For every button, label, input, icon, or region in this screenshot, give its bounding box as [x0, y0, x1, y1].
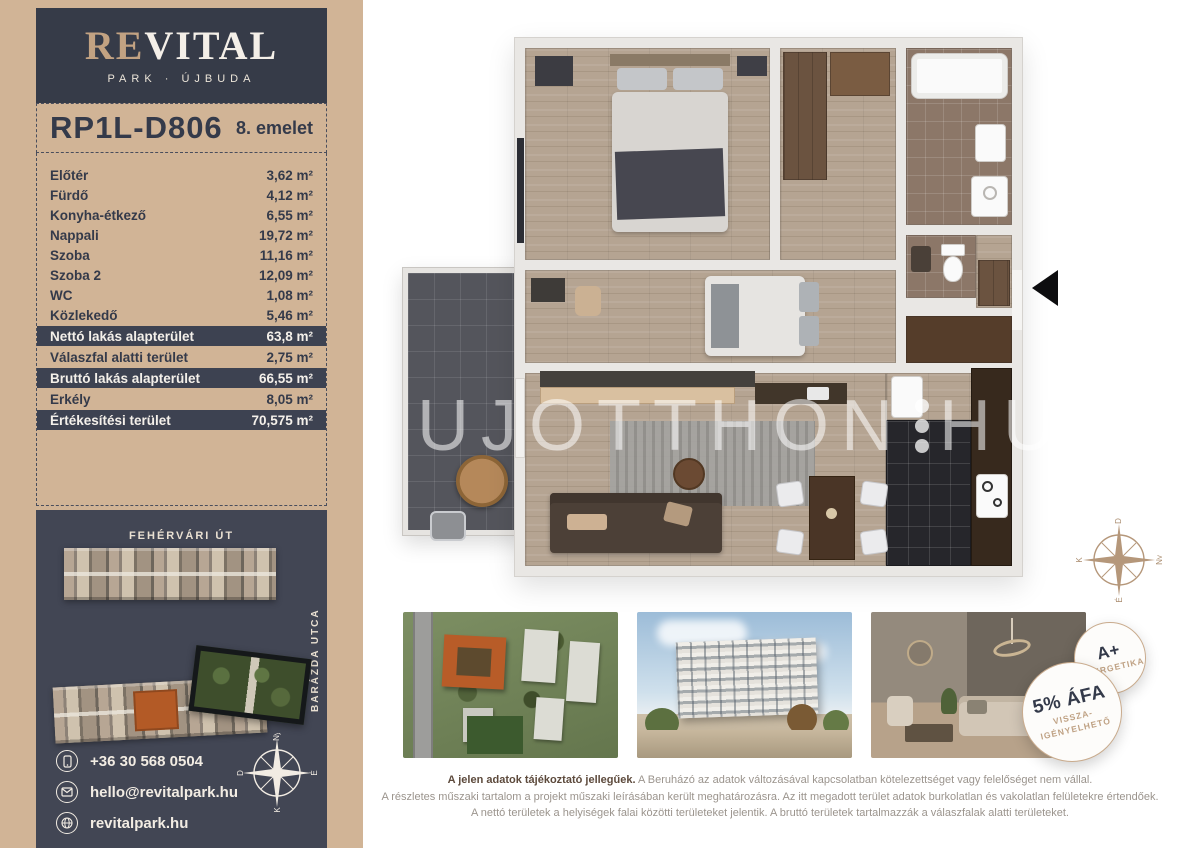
- room-area-table: Előtér3,62 m²Fürdő4,12 m²Konyha-étkező6,…: [36, 153, 327, 506]
- floor-plan: [515, 38, 1022, 576]
- room-row: Közlekedő5,46 m²: [37, 305, 326, 325]
- contact-block: +36 30 568 0504 hello@revitalpark.hu rev…: [56, 750, 238, 834]
- bed-throw: [615, 148, 725, 220]
- room-label: Fürdő: [50, 188, 88, 203]
- burner: [993, 498, 1002, 507]
- entry-doormat: [978, 260, 1010, 306]
- coffee-table: [673, 458, 705, 490]
- room-label: Értékesítési terület: [50, 413, 171, 428]
- table-decor: [826, 508, 837, 519]
- compass-rose-white-icon: Ny É K D: [237, 733, 317, 813]
- highlighted-building-marker: [133, 689, 179, 731]
- burner: [982, 481, 993, 492]
- kitchen-island: [755, 383, 847, 404]
- stove: [976, 474, 1008, 518]
- pillow: [673, 68, 723, 90]
- nightstand: [535, 56, 573, 86]
- disclaimer: A jelen adatok tájékoztató jellegűek. A …: [370, 772, 1170, 822]
- dining-chair: [775, 480, 804, 507]
- balcony-table: [456, 455, 508, 507]
- room-value: 63,8 m²: [266, 329, 313, 344]
- compass-letter: K: [1076, 557, 1084, 563]
- compass-letter: Ny: [1155, 555, 1162, 565]
- thumbnail-building-render: [637, 612, 852, 758]
- pillow: [617, 68, 667, 90]
- dining-chair: [859, 480, 888, 507]
- highlighted-building: [442, 634, 507, 689]
- contact-website-text: revitalpark.hu: [90, 815, 188, 832]
- compass-letter: É: [310, 770, 317, 775]
- room-row: Szoba11,16 m²: [37, 245, 326, 265]
- kitchen-floor: [886, 420, 971, 566]
- room-row: Előtér3,62 m²: [37, 165, 326, 185]
- room-row: WC1,08 m²: [37, 285, 326, 305]
- bathtub: [911, 53, 1008, 99]
- room-value: 1,08 m²: [266, 288, 313, 303]
- globe-icon: [56, 812, 78, 834]
- media-shelf: [540, 371, 755, 387]
- dining-chair: [859, 528, 888, 555]
- compass-letter: D: [1114, 518, 1123, 524]
- double-bed-headboard: [610, 54, 730, 66]
- balcony-door-opening: [515, 378, 525, 458]
- brand-logo: REVITAL PARK · ÚJBUDA: [36, 8, 327, 103]
- vat-badge: 5% ÁFA VISSZA- IGÉNYELHETŐ: [1022, 662, 1122, 762]
- disclaimer-line-3: A nettó területek a helyiségek falai köz…: [370, 805, 1170, 822]
- bed-blanket: [711, 284, 739, 348]
- bathroom-sink: [975, 124, 1006, 162]
- room-value: 11,16 m²: [260, 248, 313, 263]
- room-label: Erkély: [50, 392, 91, 407]
- washer-door: [983, 186, 997, 200]
- brand-name-re: RE: [85, 23, 145, 68]
- disclaimer-line-1: A jelen adatok tájékoztató jellegűek. A …: [370, 772, 1170, 789]
- room-row: Szoba 212,09 m²: [37, 265, 326, 285]
- phone-icon: [56, 750, 78, 772]
- window-band: [517, 138, 524, 243]
- compass-rose-tan-icon: D Ny É K: [1076, 517, 1162, 603]
- tv-console: [540, 387, 735, 404]
- hall-cabinet: [830, 52, 890, 96]
- disclaimer-line-2: A részletes műszaki tartalom a projekt m…: [370, 789, 1170, 806]
- room-label: Nettó lakás alapterület: [50, 329, 194, 344]
- room-row: Bruttó lakás alapterület66,55 m²: [37, 368, 326, 388]
- room-value: 4,12 m²: [266, 188, 313, 203]
- room-row: Konyha-étkező6,55 m²: [37, 205, 326, 225]
- wc-sink: [911, 246, 931, 272]
- room-row: Válaszfal alatti terület2,75 m²: [37, 347, 326, 367]
- desk: [531, 278, 565, 302]
- room-label: Előtér: [50, 168, 88, 183]
- pillow: [799, 282, 819, 312]
- armchair: [575, 286, 601, 316]
- contact-website: revitalpark.hu: [56, 812, 238, 834]
- contact-email: hello@revitalpark.hu: [56, 781, 238, 803]
- room-value: 3,62 m²: [266, 168, 313, 183]
- room-value: 6,55 m²: [266, 208, 313, 223]
- street-label-right: BARÁZDA UTCA: [310, 562, 321, 712]
- mail-icon: [56, 781, 78, 803]
- sofa-pillow: [567, 514, 607, 530]
- entry-door-opening: [1012, 270, 1022, 330]
- entrance-arrow-icon: [1032, 270, 1058, 306]
- toilet-tank: [941, 244, 965, 256]
- room-row: Erkély8,05 m²: [37, 389, 326, 409]
- compass-letter: K: [273, 807, 282, 813]
- bedroom-bench: [737, 56, 767, 76]
- kitchen-counter: [971, 368, 1012, 566]
- island-sink: [807, 387, 829, 400]
- contact-phone: +36 30 568 0504: [56, 750, 238, 772]
- room-value: 5,46 m²: [266, 308, 313, 323]
- kitchen-cabinets: [906, 316, 1012, 363]
- room-value: 70,575 m²: [251, 413, 313, 428]
- contact-email-text: hello@revitalpark.hu: [90, 784, 238, 801]
- courtyard-plan: [188, 645, 311, 725]
- dining-chair: [775, 528, 804, 555]
- room-label: Nappali: [50, 228, 99, 243]
- siteplan-panel: FEHÉRVÁRI ÚT BARÁZDA UTCA Ny É K D: [36, 510, 327, 848]
- wall-mirror: [907, 640, 933, 666]
- room-label: Bruttó lakás alapterület: [50, 371, 200, 386]
- room-value: 12,09 m²: [259, 268, 313, 283]
- unit-header: RP1L-D806 8. emelet: [36, 103, 327, 153]
- room-row: Értékesítési terület70,575 m²: [37, 410, 326, 430]
- room-label: Szoba: [50, 248, 90, 263]
- room-value: 19,72 m²: [259, 228, 313, 243]
- compass-letter: Ny: [272, 733, 281, 741]
- room-value: 66,55 m²: [259, 371, 313, 386]
- room-label: Válaszfal alatti terület: [50, 350, 188, 365]
- room-row: Fürdő4,12 m²: [37, 185, 326, 205]
- room-value: 2,75 m²: [266, 350, 313, 365]
- balcony: [403, 268, 532, 535]
- fridge: [891, 376, 923, 418]
- room-label: Konyha-étkező: [50, 208, 146, 223]
- street-label-top: FEHÉRVÁRI ÚT: [36, 530, 327, 542]
- siteplan-building-strip-upper: [64, 548, 276, 600]
- compass-letter: D: [237, 770, 245, 776]
- disclaimer-bold: A jelen adatok tájékoztató jellegűek.: [448, 774, 636, 786]
- compass-letter: É: [1115, 597, 1124, 602]
- unit-floor: 8. emelet: [236, 118, 313, 139]
- contact-phone-text: +36 30 568 0504: [90, 753, 203, 770]
- unit-code: RP1L-D806: [50, 110, 223, 146]
- coffee-table: [905, 724, 953, 742]
- toilet: [943, 256, 963, 282]
- plant: [941, 688, 957, 714]
- brand-subtitle: PARK · ÚJBUDA: [108, 73, 256, 85]
- sports-field: [467, 716, 523, 754]
- balcony-chair: [430, 511, 466, 541]
- brand-name: REVITAL: [85, 26, 278, 66]
- room-label: Szoba 2: [50, 268, 101, 283]
- wardrobe: [783, 52, 827, 180]
- room-row: Nappali19,72 m²: [37, 225, 326, 245]
- sidebar: REVITAL PARK · ÚJBUDA RP1L-D806 8. emele…: [0, 0, 363, 848]
- pillow: [799, 316, 819, 346]
- road: [413, 612, 433, 758]
- room-value: 8,05 m²: [266, 392, 313, 407]
- room-label: Közlekedő: [50, 308, 118, 323]
- room-row: Nettó lakás alapterület63,8 m²: [37, 326, 326, 346]
- brochure-page: REVITAL PARK · ÚJBUDA RP1L-D806 8. emele…: [0, 0, 1200, 848]
- chair: [887, 696, 913, 726]
- room-label: WC: [50, 288, 73, 303]
- brand-name-vital: VITAL: [144, 23, 278, 68]
- thumbnail-aerial-view: [403, 612, 618, 758]
